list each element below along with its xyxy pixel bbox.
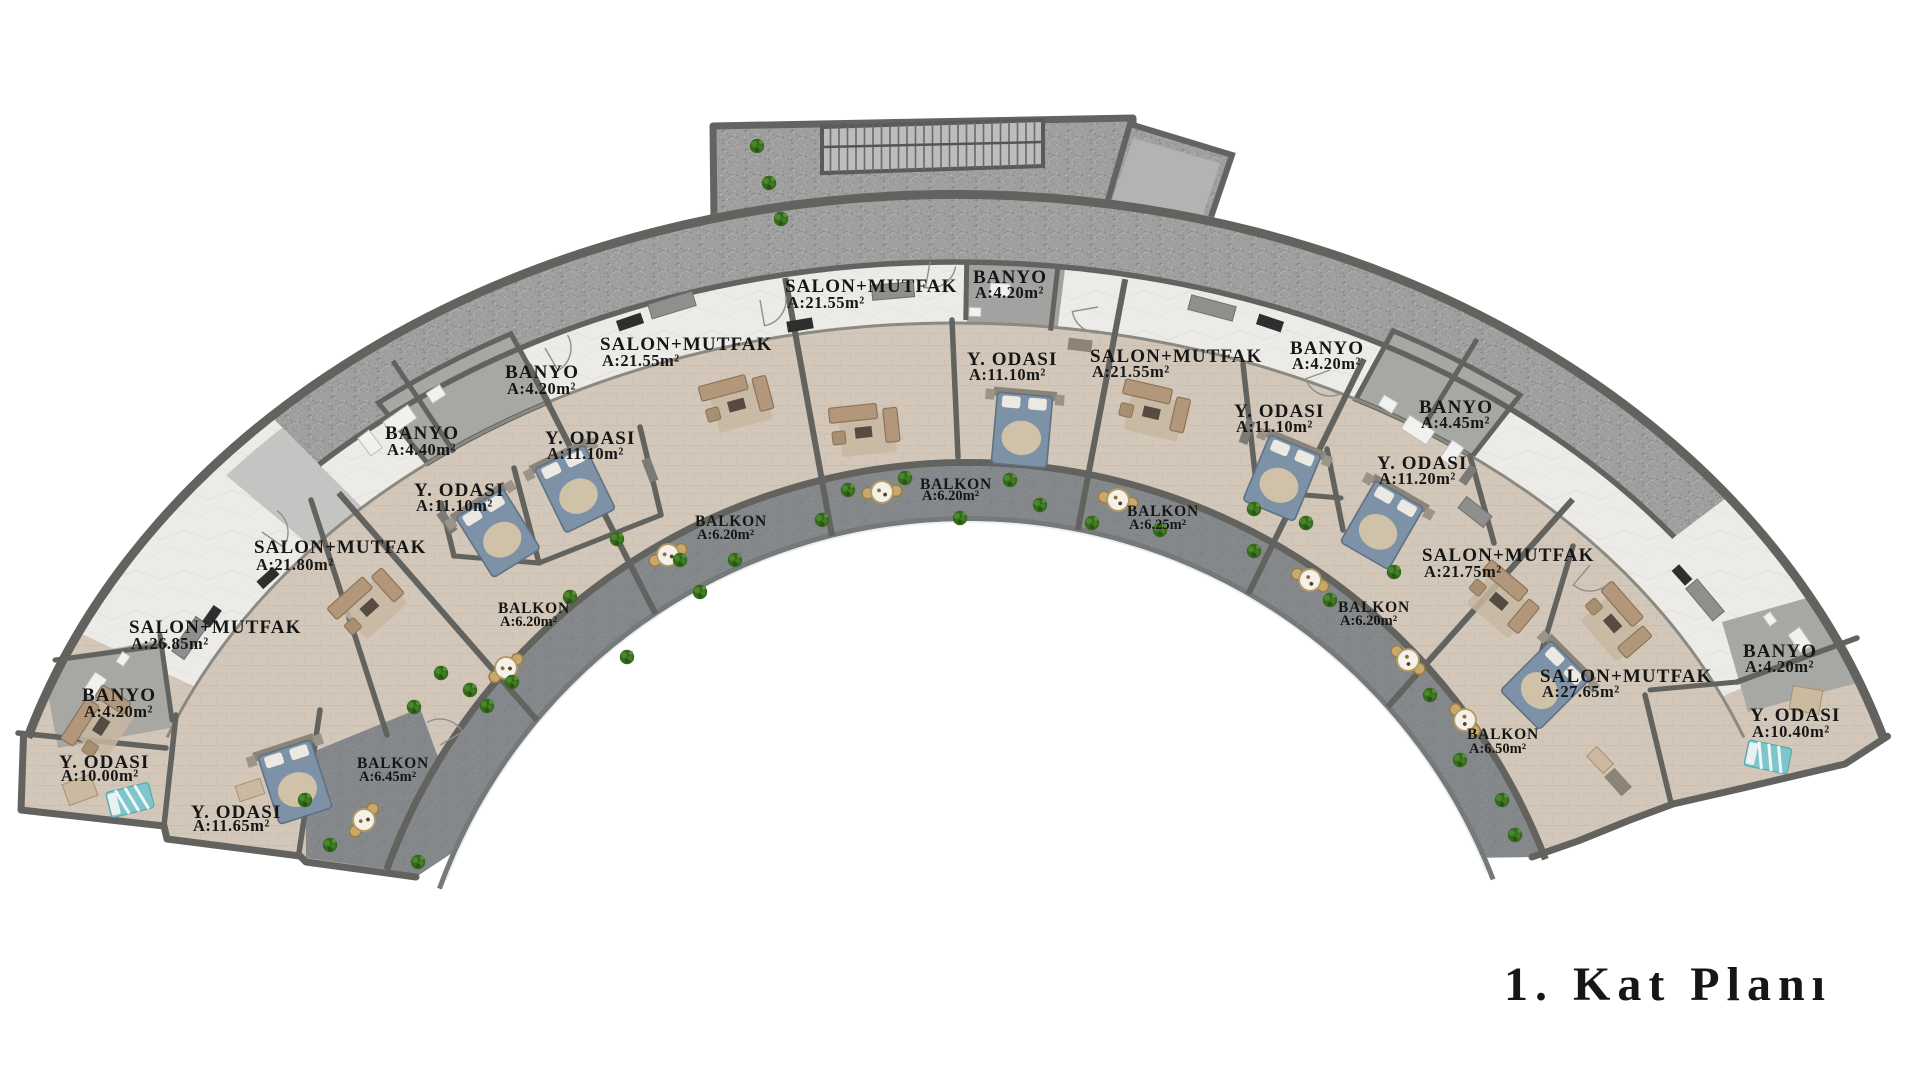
svg-text:A:6.45m²: A:6.45m² bbox=[359, 769, 416, 785]
svg-text:A:4.20m²: A:4.20m² bbox=[507, 379, 576, 398]
svg-text:A:21.75m²: A:21.75m² bbox=[1424, 562, 1502, 581]
svg-text:A:21.55m²: A:21.55m² bbox=[787, 293, 865, 312]
svg-text:A:11.65m²: A:11.65m² bbox=[193, 816, 270, 835]
svg-text:A:10.00m²: A:10.00m² bbox=[61, 766, 139, 785]
svg-text:A:11.10m²: A:11.10m² bbox=[416, 496, 493, 515]
svg-text:A:6.20m²: A:6.20m² bbox=[500, 614, 557, 630]
svg-text:A:11.10m²: A:11.10m² bbox=[547, 444, 624, 463]
svg-text:A:26.85m²: A:26.85m² bbox=[131, 634, 209, 653]
svg-text:A:11.10m²: A:11.10m² bbox=[969, 365, 1046, 384]
svg-text:1. Kat Planı: 1. Kat Planı bbox=[1504, 958, 1832, 1011]
svg-text:A:10.40m²: A:10.40m² bbox=[1752, 722, 1830, 741]
svg-text:A:11.20m²: A:11.20m² bbox=[1379, 469, 1456, 488]
svg-text:A:21.55m²: A:21.55m² bbox=[1092, 362, 1170, 381]
svg-text:A:6.50m²: A:6.50m² bbox=[1469, 741, 1526, 757]
svg-text:A:4.20m²: A:4.20m² bbox=[1292, 354, 1361, 373]
svg-text:A:4.40m²: A:4.40m² bbox=[387, 440, 456, 459]
svg-text:A:4.45m²: A:4.45m² bbox=[1421, 413, 1490, 432]
svg-text:A:21.80m²: A:21.80m² bbox=[256, 555, 334, 574]
svg-text:A:6.20m²: A:6.20m² bbox=[922, 488, 979, 504]
svg-text:A:27.65m²: A:27.65m² bbox=[1542, 682, 1620, 701]
svg-text:A:4.20m²: A:4.20m² bbox=[84, 702, 153, 721]
svg-text:A:11.10m²: A:11.10m² bbox=[1236, 417, 1313, 436]
svg-text:A:6.20m²: A:6.20m² bbox=[697, 527, 754, 543]
svg-text:A:4.20m²: A:4.20m² bbox=[975, 283, 1044, 302]
svg-text:A:6.20m²: A:6.20m² bbox=[1340, 613, 1397, 629]
svg-text:A:6.25m²: A:6.25m² bbox=[1129, 517, 1186, 533]
svg-text:A:4.20m²: A:4.20m² bbox=[1745, 657, 1814, 676]
svg-text:A:21.55m²: A:21.55m² bbox=[602, 351, 680, 370]
